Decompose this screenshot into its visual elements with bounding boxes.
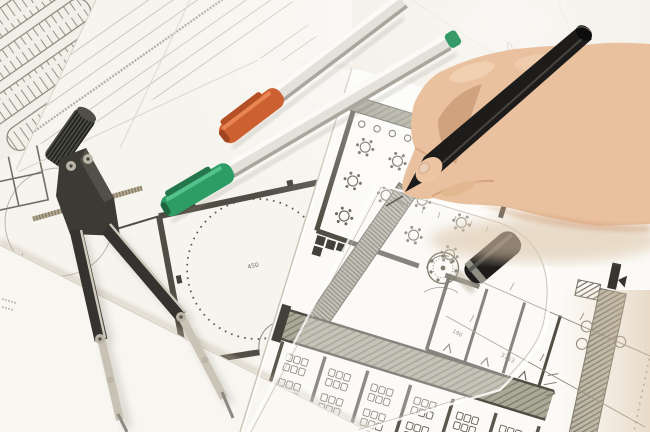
photo-architect-drawing: 450 [0,0,650,432]
photo-canvas: 450 [0,0,650,432]
